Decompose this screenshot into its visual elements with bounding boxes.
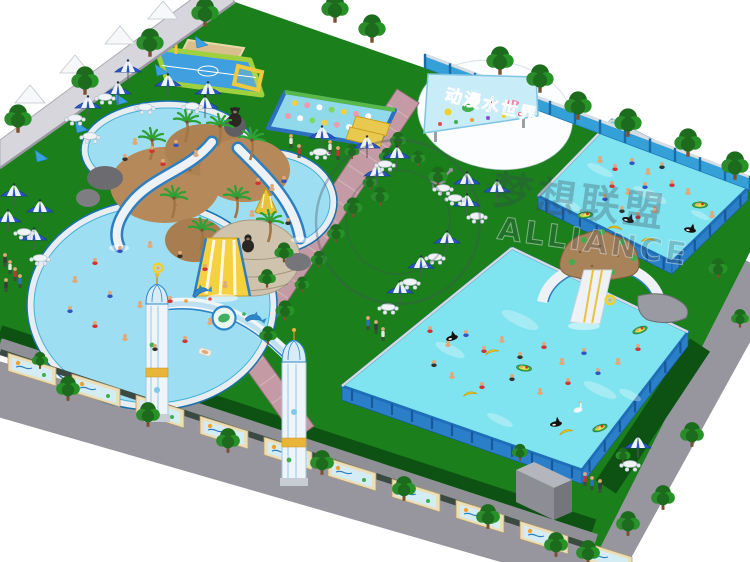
pool-frame-post [588, 460, 590, 472]
fence-post [649, 138, 651, 152]
pool-float-boat [693, 202, 708, 208]
pool-float-ring [153, 263, 162, 272]
stepping-pad [304, 102, 310, 108]
pool-frame-post [531, 453, 533, 465]
pool-frame-post [551, 460, 553, 472]
pool-frame-post [491, 439, 493, 451]
stepping-pad [322, 120, 328, 126]
waterpark-render: 动漫水世界 [0, 0, 750, 562]
pool-float-ring [605, 295, 615, 305]
stepping-pad [316, 104, 322, 110]
pool-frame-post [739, 195, 741, 207]
stepping-pad [334, 122, 340, 128]
pool-frame-post [471, 432, 473, 444]
pool-frame-post [571, 467, 573, 479]
arch-pillar-left [144, 273, 170, 422]
pool-frame-post [724, 210, 726, 222]
rock [76, 189, 100, 207]
stepping-pad [285, 113, 291, 119]
arch-pillar-right [280, 328, 308, 486]
fence-post [424, 54, 426, 68]
fence-post [549, 101, 551, 115]
goal-frame-right [234, 66, 262, 90]
pool-frame-post [694, 240, 696, 252]
pool-frame-post [391, 404, 393, 416]
pool-frame-post [634, 401, 636, 413]
stepping-pad [309, 117, 315, 123]
pool-frame-post [709, 225, 711, 237]
pool-frame-post [664, 362, 666, 374]
fence-post [674, 148, 676, 162]
fence-post [699, 157, 701, 171]
pool-frame-post [649, 381, 651, 393]
pool-frame-post [351, 390, 353, 402]
gorilla-figure [229, 107, 242, 127]
fence-post [599, 120, 601, 134]
pool-frame-post [371, 397, 373, 409]
scene-svg: 动漫水世界 [0, 0, 750, 562]
pool-frame-post [679, 342, 681, 354]
stepping-pad [297, 115, 303, 121]
pool-frame-post [619, 421, 621, 433]
pool-frame-post [604, 440, 606, 452]
rock [87, 166, 123, 190]
pool-frame-post [411, 411, 413, 423]
pool-frame-post [451, 425, 453, 437]
pool-frame-post [431, 418, 433, 430]
stepping-pad [292, 100, 298, 106]
stepping-pad [341, 109, 347, 115]
stepping-pad [329, 107, 335, 113]
